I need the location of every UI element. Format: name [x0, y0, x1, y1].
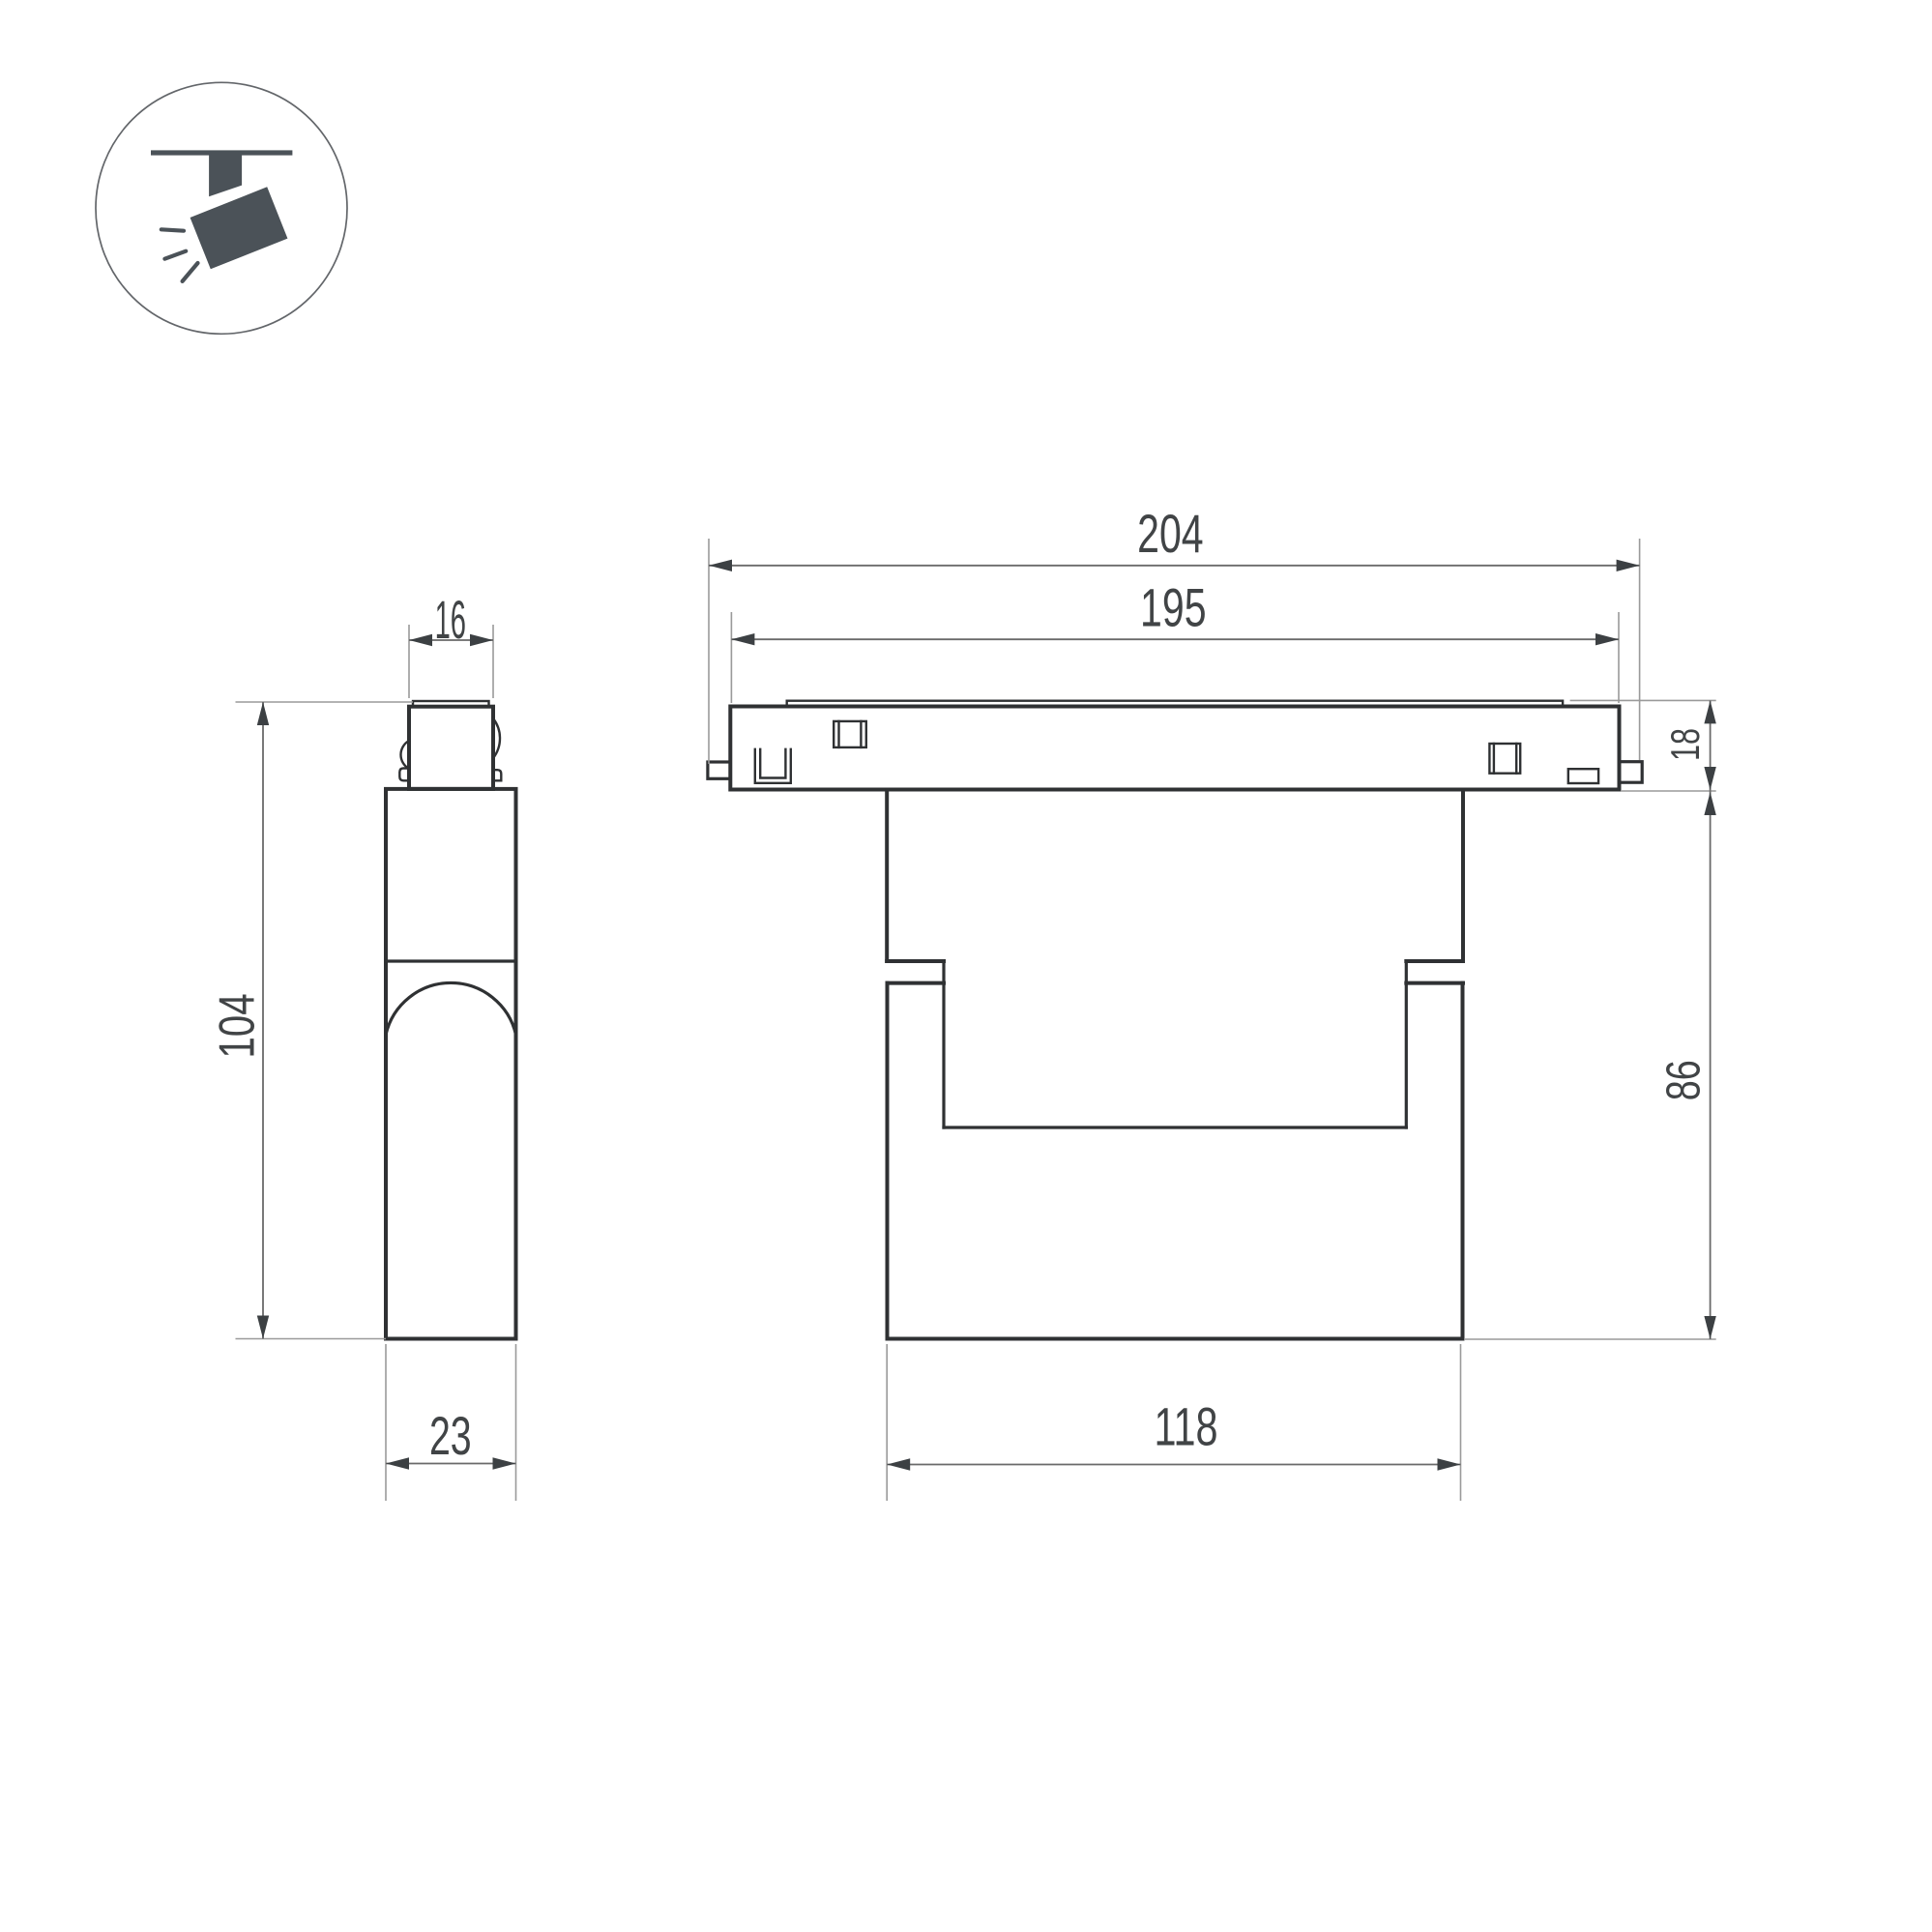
- svg-text:195: 195: [1140, 576, 1207, 637]
- svg-text:23: 23: [429, 1405, 472, 1466]
- svg-text:18: 18: [1662, 728, 1708, 761]
- svg-text:16: 16: [435, 589, 466, 650]
- svg-text:118: 118: [1155, 1396, 1218, 1457]
- svg-text:86: 86: [1657, 1060, 1711, 1100]
- svg-text:204: 204: [1137, 503, 1204, 564]
- svg-text:104: 104: [208, 993, 264, 1058]
